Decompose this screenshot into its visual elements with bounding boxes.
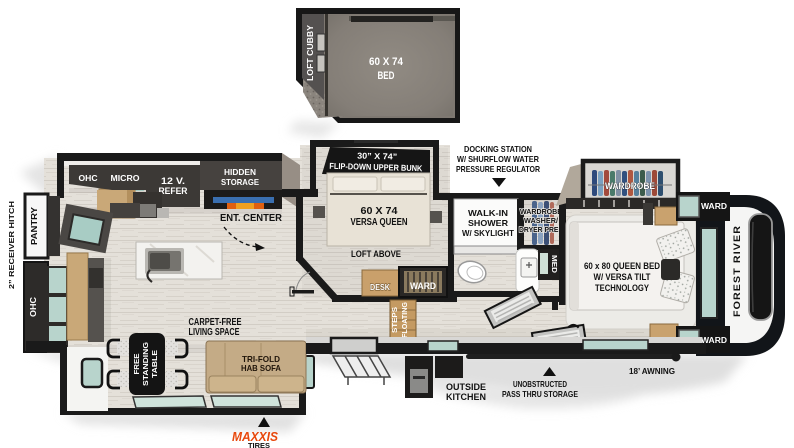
svg-text:OUTSIDE: OUTSIDE [446,382,486,392]
svg-text:60 X 74: 60 X 74 [361,206,398,217]
svg-text:W/ SHURFLOW WATER: W/ SHURFLOW WATER [457,154,539,164]
svg-text:PRESSURE REGULATOR: PRESSURE REGULATOR [456,164,540,174]
svg-text:PANTRY: PANTRY [30,206,39,245]
svg-text:WARDROBE: WARDROBE [520,207,562,216]
svg-text:HAB SOFA: HAB SOFA [241,363,281,373]
svg-text:BED: BED [378,70,395,82]
svg-text:WARDROBE: WARDROBE [605,181,655,191]
svg-text:TIRES: TIRES [248,441,270,448]
svg-text:VERSA QUEEN: VERSA QUEEN [351,217,408,228]
svg-text:HIDDEN: HIDDEN [224,167,256,177]
svg-text:WARD: WARD [701,202,727,211]
svg-text:WASHER/: WASHER/ [524,216,559,225]
svg-text:60 X 74: 60 X 74 [369,56,404,68]
svg-text:30” X 74”: 30” X 74” [357,151,397,162]
svg-text:W/ VERSA TILT: W/ VERSA TILT [594,272,651,282]
svg-text:DRYER PREP: DRYER PREP [519,225,563,234]
svg-text:REFER: REFER [159,186,188,196]
svg-text:KITCHEN: KITCHEN [446,392,486,402]
svg-text:18’ AWNING: 18’ AWNING [629,366,675,376]
svg-text:LOFT CUBBY: LOFT CUBBY [306,24,315,81]
svg-text:OHC: OHC [29,297,38,317]
svg-text:12 V.: 12 V. [161,176,185,186]
svg-text:TABLE: TABLE [150,350,159,378]
svg-text:W/ SKYLIGHT: W/ SKYLIGHT [462,228,515,238]
svg-text:FLOATING: FLOATING [400,302,409,338]
svg-text:STORAGE: STORAGE [221,177,259,187]
svg-text:ENT. CENTER: ENT. CENTER [220,213,283,224]
svg-text:MED: MED [550,255,559,274]
svg-text:MICRO: MICRO [111,174,140,183]
svg-text:WALK-IN: WALK-IN [468,208,508,218]
svg-text:WARD: WARD [410,281,436,291]
svg-text:UNOBSTRUCTED: UNOBSTRUCTED [513,379,567,389]
svg-text:OHC: OHC [79,174,98,183]
svg-text:TECHNOLOGY: TECHNOLOGY [595,283,649,293]
svg-text:60 x 80 QUEEN BED: 60 x 80 QUEEN BED [584,261,660,271]
svg-text:PASS THRU STORAGE: PASS THRU STORAGE [502,389,578,399]
svg-text:FOREST RIVER: FOREST RIVER [732,225,743,317]
svg-text:LOFT ABOVE: LOFT ABOVE [351,249,401,260]
svg-text:STEPS: STEPS [390,307,399,333]
svg-text:2” RECEIVER HITCH: 2” RECEIVER HITCH [7,201,16,289]
svg-text:SHOWER: SHOWER [468,218,508,228]
svg-text:DESK: DESK [370,282,391,292]
svg-text:FREE: FREE [132,354,141,375]
svg-text:LIVING SPACE: LIVING SPACE [189,327,240,338]
svg-text:STANDING: STANDING [141,342,150,386]
svg-text:DOCKING STATION: DOCKING STATION [464,144,532,154]
